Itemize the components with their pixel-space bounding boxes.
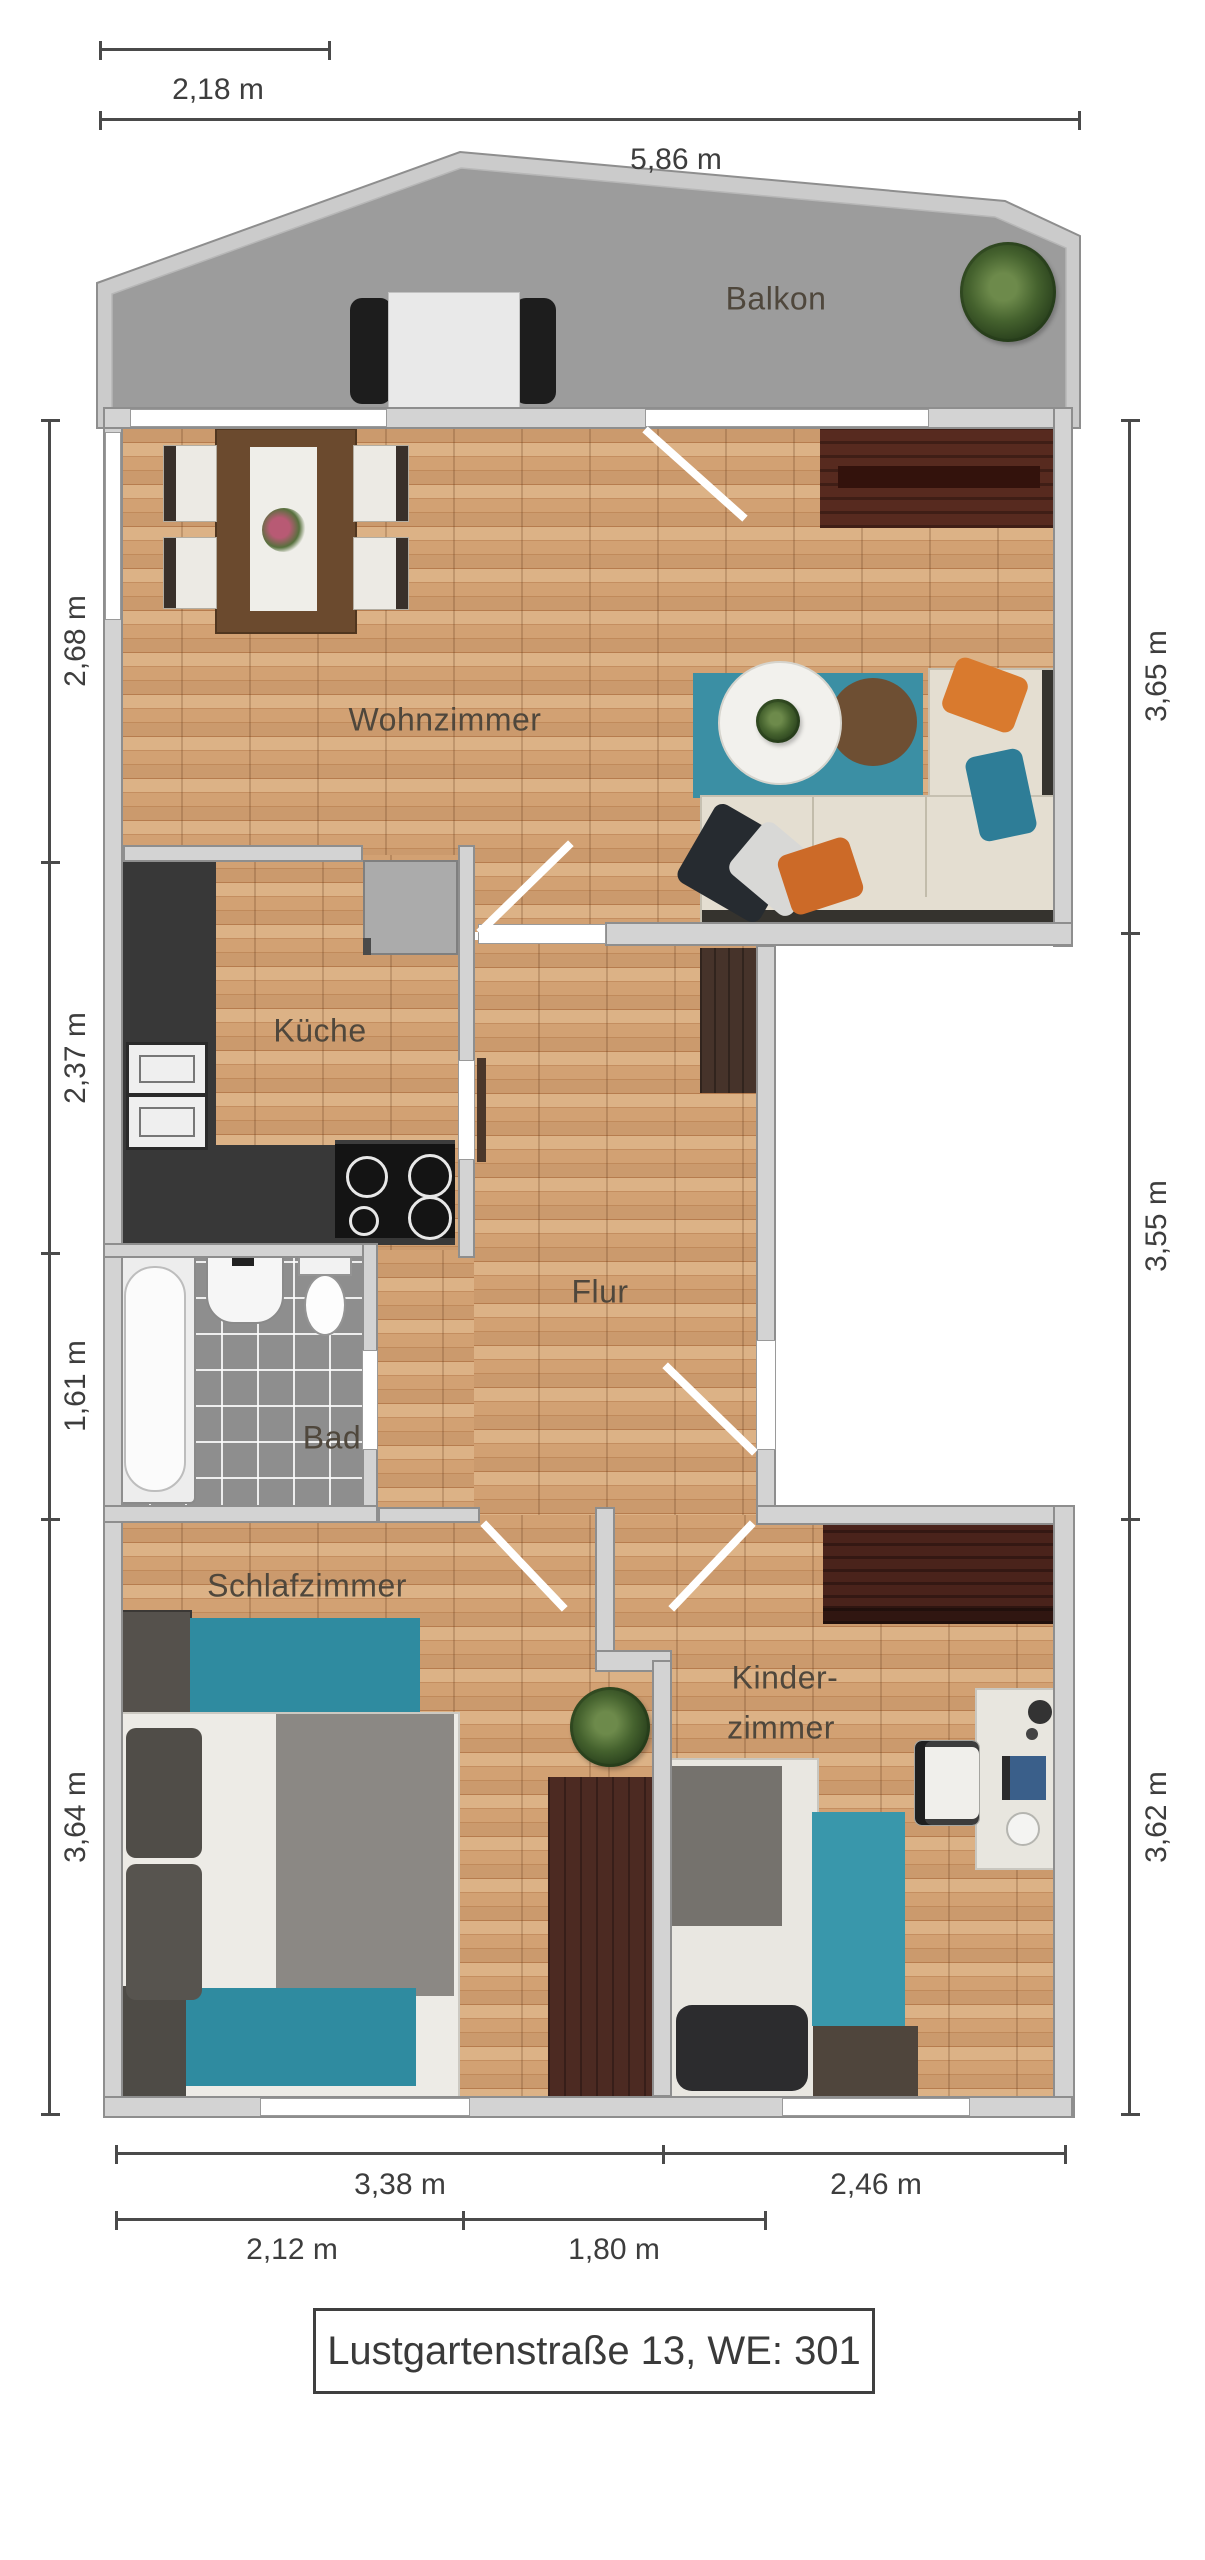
- dim-label-right-3: 3,62 m: [1140, 1771, 1174, 1863]
- dim-line-bottom-2: [116, 2218, 766, 2221]
- dim-line-left: [48, 420, 51, 2115]
- dim-label-left-4: 3,64 m: [59, 1771, 93, 1863]
- floor-plan: Balkon: [0, 0, 1205, 2560]
- room-label-kids-2: zimmer: [727, 1710, 835, 1747]
- dim-label-bottom-1b: 2,46 m: [830, 2168, 922, 2202]
- room-label-kids-1: Kinder-: [732, 1660, 839, 1697]
- dim-label-top-2: 5,86 m: [630, 143, 722, 177]
- dim-label-right-2: 3,55 m: [1140, 1180, 1174, 1272]
- room-label-bath: Bad: [303, 1420, 361, 1457]
- dim-line-bottom-1: [116, 2152, 1066, 2155]
- dim-line-top-1: [100, 48, 330, 51]
- dim-label-bottom-1a: 3,38 m: [354, 2168, 446, 2202]
- dim-label-bottom-2a: 2,12 m: [246, 2233, 338, 2267]
- dim-label-top-1: 2,18 m: [172, 73, 264, 107]
- room-label-living: Wohnzimmer: [349, 702, 542, 739]
- plan-title: Lustgartenstraße 13, WE: 301: [313, 2308, 875, 2394]
- dim-line-top-2: [100, 118, 1080, 121]
- dim-line-right: [1128, 420, 1131, 2115]
- room-label-hall: Flur: [571, 1274, 628, 1311]
- room-label-bedroom: Schlafzimmer: [207, 1568, 407, 1605]
- room-label-kitchen: Küche: [273, 1013, 366, 1050]
- dim-label-left-3: 1,61 m: [59, 1340, 93, 1432]
- dim-label-left-1: 2,68 m: [59, 595, 93, 687]
- dim-label-bottom-2b: 1,80 m: [568, 2233, 660, 2267]
- dim-label-left-2: 2,37 m: [59, 1012, 93, 1104]
- dim-label-right-1: 3,65 m: [1140, 630, 1174, 722]
